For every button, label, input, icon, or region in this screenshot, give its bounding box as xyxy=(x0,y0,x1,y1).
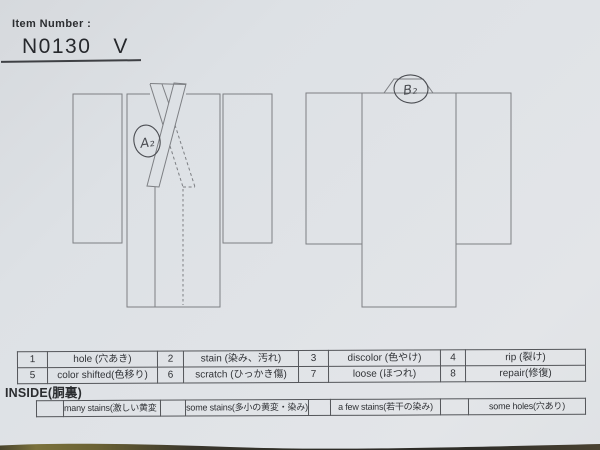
photo-desk-edge xyxy=(0,434,600,450)
condition-label-cell: discolor (色やけ) xyxy=(328,350,440,366)
code-cell: 1 xyxy=(17,352,47,368)
checkbox-cell xyxy=(308,399,330,415)
code-cell: 8 xyxy=(440,366,465,382)
code-cell: 6 xyxy=(158,367,184,383)
code-cell: 2 xyxy=(157,351,183,367)
inside-condition-table: many stains(激しい黄変・染み) some stains(多小の黄変・… xyxy=(36,398,586,417)
kimono-front-outline xyxy=(73,83,272,307)
checkbox-cell xyxy=(36,401,63,417)
checkbox-cell xyxy=(440,399,468,415)
condition-label-cell: scratch (ひっかき傷) xyxy=(184,367,299,384)
code-cell: 7 xyxy=(299,366,329,382)
inside-label-cell: many stains(激しい黄変・染み) xyxy=(63,400,160,416)
kimono-back-outline xyxy=(306,79,511,307)
condition-label-cell: repair(修復) xyxy=(465,365,585,382)
checkbox-cell xyxy=(160,400,185,416)
inside-section-label: INSIDE(胴裏) xyxy=(5,382,82,401)
condition-label-cell: loose (ほつれ) xyxy=(328,366,440,382)
inside-label-cell: some stains(多小の黄変・染み) xyxy=(185,400,308,417)
inside-label-cell: a few stains(若干の染み) xyxy=(330,399,440,415)
table-row: many stains(激しい黄変・染み) some stains(多小の黄変・… xyxy=(36,398,585,416)
table-row: 5 color shifted(色移り) 6 scratch (ひっかき傷) 7… xyxy=(18,365,586,383)
code-cell: 3 xyxy=(298,350,328,366)
condition-label-cell: stain (染み、汚れ) xyxy=(183,351,298,368)
condition-label-cell: hole (穴あき) xyxy=(47,351,157,367)
condition-code-table: 1 hole (穴あき) 2 stain (染み、汚れ) 3 discolor … xyxy=(17,349,586,384)
annotation-a2-text: A₂ xyxy=(138,135,155,152)
annotation-b2-text: B₂ xyxy=(402,82,418,98)
inside-label-cell: some holes(穴あり) xyxy=(468,398,585,415)
photographed-kimono-condition-form: Item Number : N0130 V xyxy=(0,0,600,450)
condition-label-cell: rip (裂け) xyxy=(465,349,585,366)
code-cell: 4 xyxy=(440,350,465,366)
